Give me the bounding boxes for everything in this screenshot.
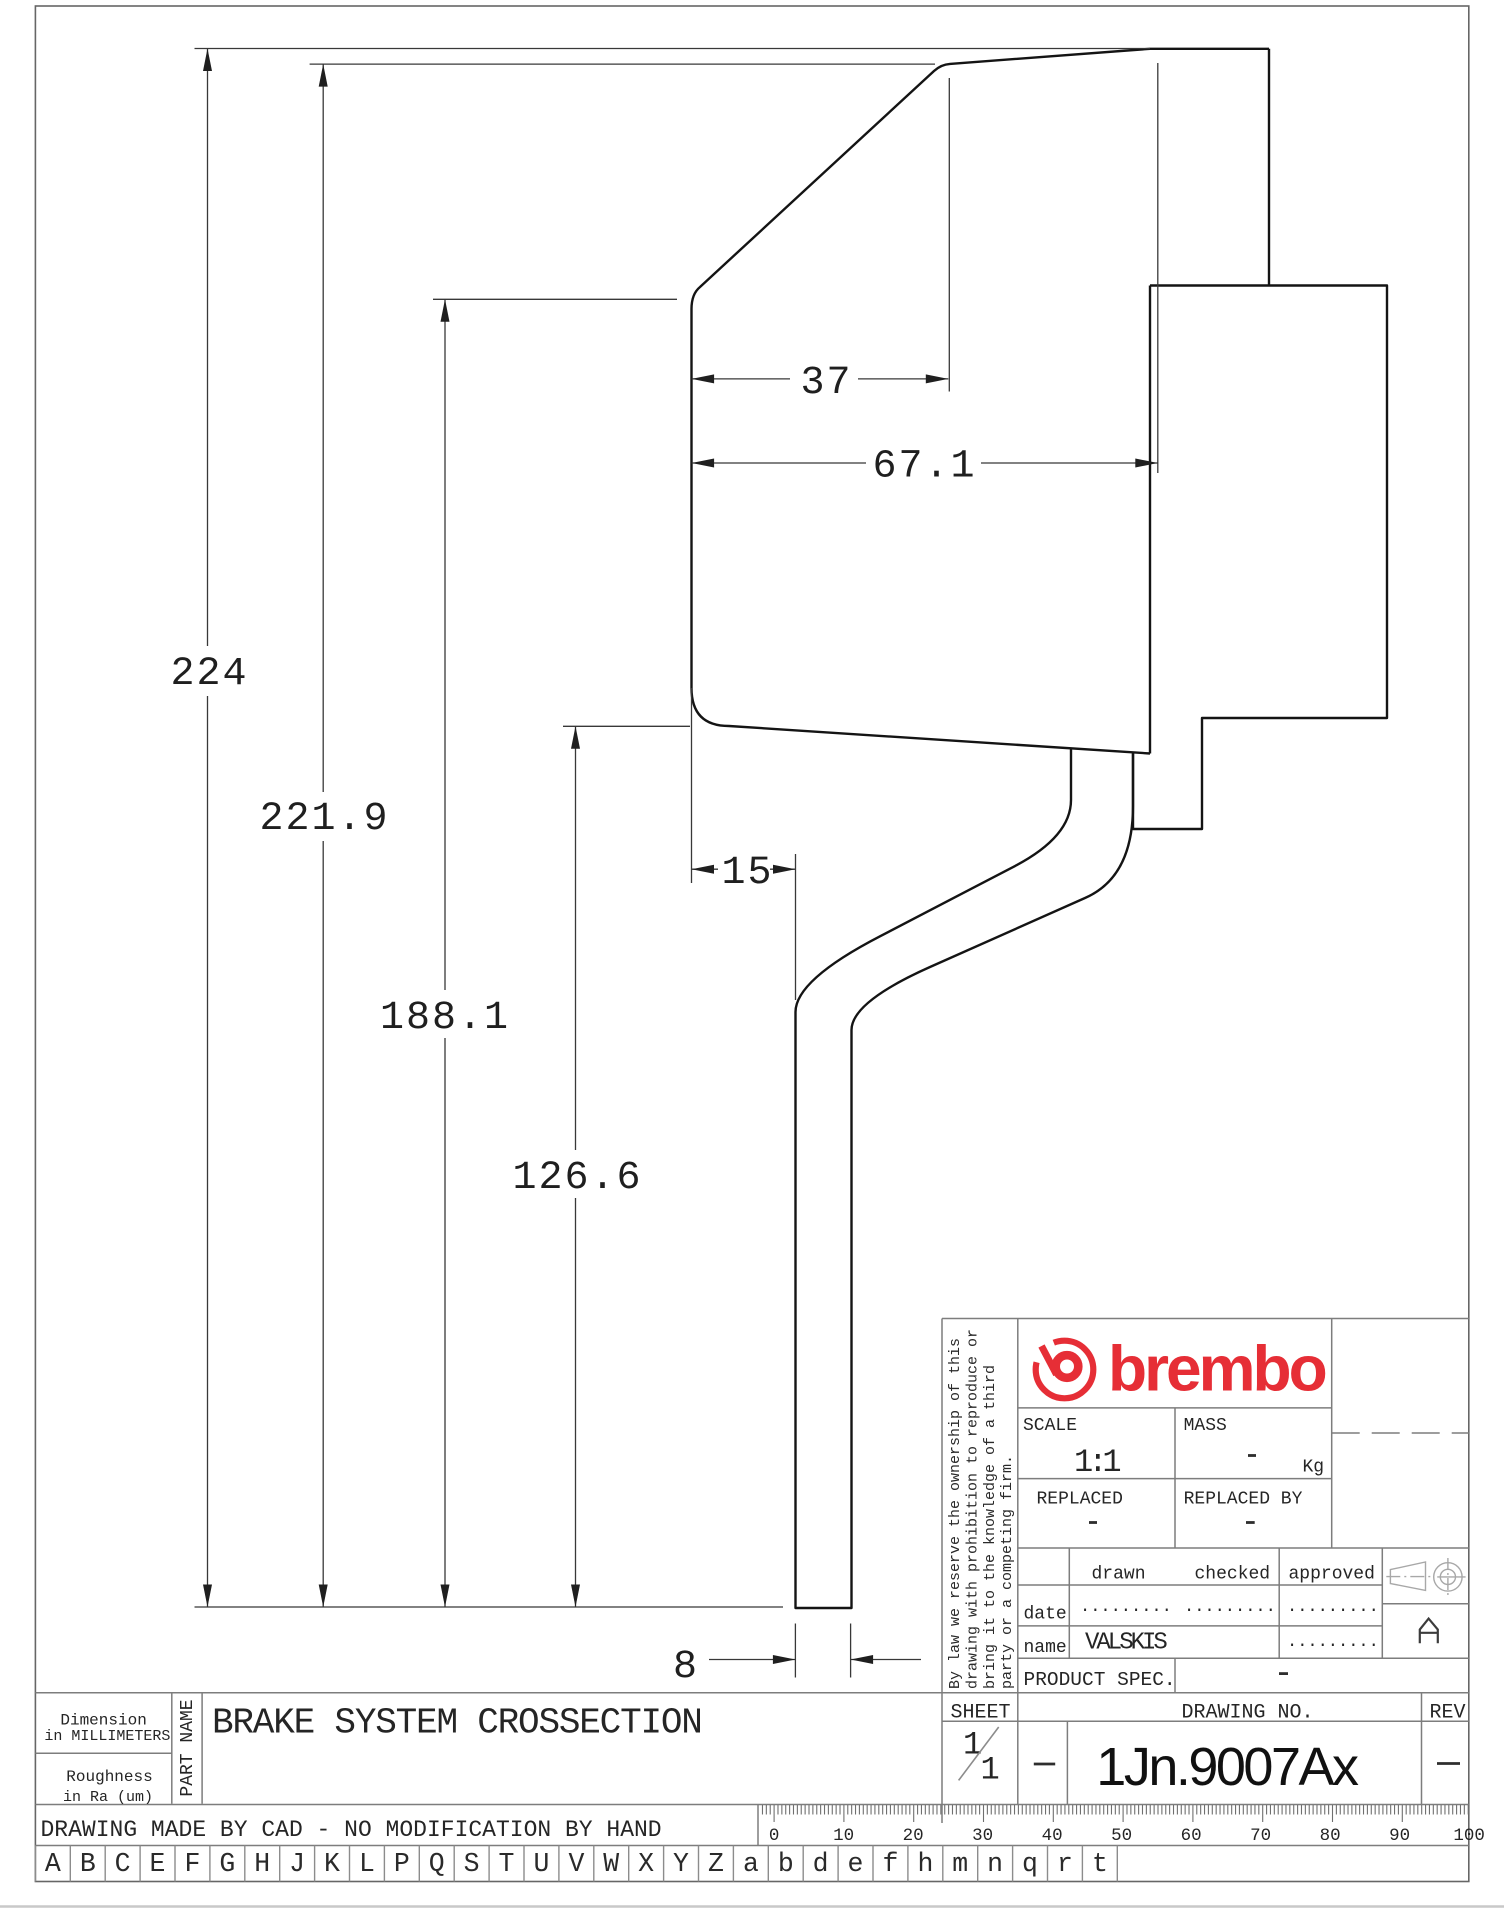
svg-text:m: m [952,1849,968,1879]
svg-text:drawing with prohibition to re: drawing with prohibition to reproduce or [964,1329,981,1689]
svg-text:Dimension: Dimension [60,1712,146,1730]
svg-text:approved: approved [1289,1565,1375,1585]
svg-text:q: q [1022,1849,1038,1879]
svg-text:Q: Q [429,1849,445,1879]
svg-text:Kg: Kg [1303,1458,1325,1478]
svg-text:e: e [848,1849,864,1879]
svg-text:party or a competing firm.: party or a competing firm. [999,1455,1016,1689]
svg-text:t: t [1092,1849,1108,1879]
svg-text:b: b [778,1849,794,1879]
svg-text:Z: Z [708,1849,724,1879]
svg-text:10: 10 [833,1826,854,1846]
svg-text:U: U [534,1849,550,1879]
svg-text:DRAWING MADE BY CAD - NO MODIF: DRAWING MADE BY CAD - NO MODIFICATION BY… [41,1817,662,1843]
svg-text:X: X [638,1849,654,1879]
svg-text:By law we reserve the ownershi: By law we reserve the ownership of this [947,1338,964,1689]
svg-text:BRAKE SYSTEM CROSSECTION: BRAKE SYSTEM CROSSECTION [212,1703,702,1744]
svg-text:f: f [882,1849,898,1879]
svg-text:T: T [499,1849,515,1879]
svg-text:h: h [917,1849,933,1879]
svg-text:bring it to the knowledge of a: bring it to the knowledge of a third [982,1365,999,1689]
svg-text:V: V [568,1849,584,1879]
svg-text:1: 1 [981,1752,1000,1789]
svg-text:DRAWING NO.: DRAWING NO. [1182,1702,1314,1725]
svg-text:90: 90 [1389,1826,1410,1846]
svg-text:Roughness: Roughness [66,1768,152,1786]
svg-text:A: A [45,1849,61,1879]
svg-text:E: E [150,1849,166,1879]
svg-text:J: J [289,1849,305,1879]
svg-text:H: H [254,1849,270,1879]
svg-text:50: 50 [1111,1826,1132,1846]
svg-text:REV: REV [1430,1702,1466,1725]
svg-text:.........: ......... [1287,1598,1379,1617]
svg-text:in MILLIMETERS: in MILLIMETERS [44,1728,170,1745]
svg-text:W: W [603,1849,619,1879]
svg-text:40: 40 [1042,1826,1063,1846]
svg-text:224: 224 [170,652,248,697]
svg-text:1: 1 [963,1727,982,1764]
svg-text:checked: checked [1195,1565,1271,1585]
svg-text:30: 30 [972,1826,993,1846]
svg-text:a: a [743,1849,759,1879]
svg-text:SHEET: SHEET [951,1702,1011,1725]
svg-text:.........: ......... [1080,1598,1172,1617]
svg-text:r: r [1057,1849,1073,1879]
svg-text:20: 20 [903,1826,924,1846]
svg-text:S: S [464,1849,480,1879]
svg-text:1:1: 1:1 [1074,1444,1120,1481]
svg-text:G: G [219,1849,235,1879]
svg-text:name: name [1024,1638,1067,1658]
svg-text:F: F [184,1849,200,1879]
svg-text:REPLACED BY: REPLACED BY [1184,1490,1303,1510]
svg-text:221.9: 221.9 [259,797,389,842]
svg-text:70: 70 [1250,1826,1271,1846]
svg-text:brembo: brembo [1108,1333,1326,1405]
svg-text:Y: Y [673,1849,689,1879]
svg-text:date: date [1024,1605,1067,1625]
svg-text:PRODUCT SPEC.: PRODUCT SPEC. [1024,1669,1176,1691]
svg-text:P: P [394,1849,410,1879]
svg-text:VALSKIS: VALSKIS [1085,1630,1167,1657]
svg-text:L: L [359,1849,375,1879]
svg-text:60: 60 [1181,1826,1202,1846]
svg-text:drawn: drawn [1092,1565,1146,1585]
svg-text:SCALE: SCALE [1023,1416,1077,1436]
svg-text:PART NAME: PART NAME [178,1699,198,1796]
svg-text:15: 15 [721,851,773,896]
svg-text:126.6: 126.6 [512,1156,642,1201]
svg-text:.........: ......... [1287,1633,1379,1652]
svg-text:REPLACED: REPLACED [1037,1490,1123,1510]
svg-text:d: d [813,1849,829,1879]
svg-text:1Jn.9007Ax: 1Jn.9007Ax [1096,1737,1359,1797]
svg-text:B: B [80,1849,96,1879]
svg-text:188.1: 188.1 [380,996,510,1041]
svg-text:n: n [987,1849,1003,1879]
svg-text:C: C [115,1849,131,1879]
svg-text:80: 80 [1320,1826,1341,1846]
svg-text:MASS: MASS [1184,1416,1227,1436]
svg-text:0: 0 [769,1826,780,1846]
svg-text:K: K [324,1849,340,1879]
svg-text:100: 100 [1453,1826,1485,1846]
svg-text:67.1: 67.1 [872,445,976,490]
svg-text:in Ra (um): in Ra (um) [63,1789,153,1806]
svg-text:8: 8 [673,1645,699,1690]
svg-text:.........: ......... [1184,1598,1276,1617]
svg-text:37: 37 [800,361,852,406]
